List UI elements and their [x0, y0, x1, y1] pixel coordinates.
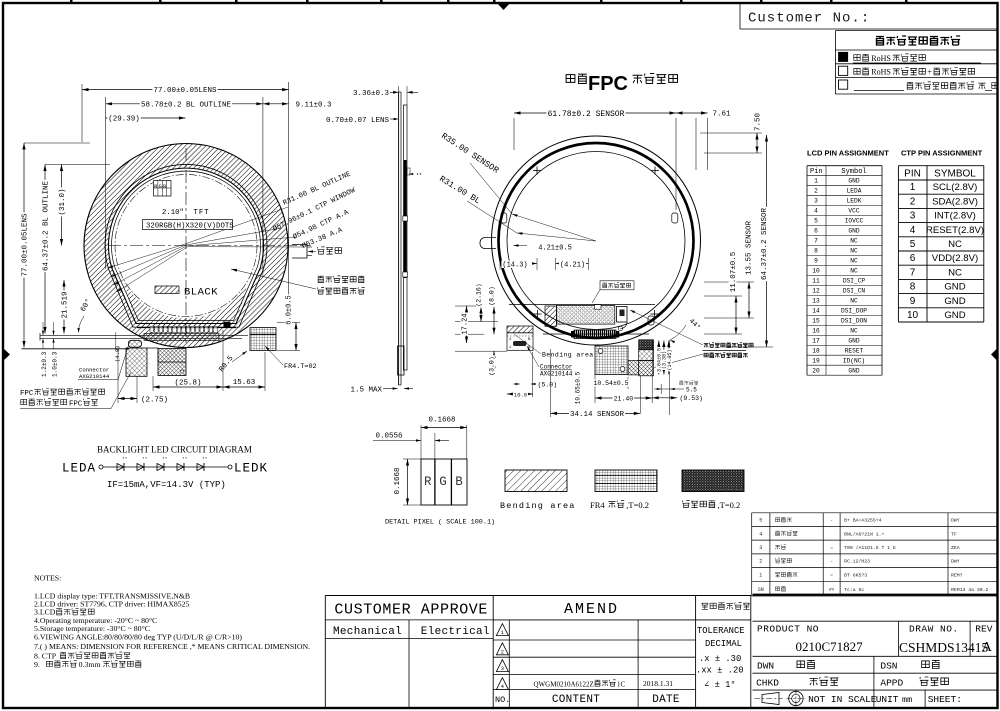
svg-text:2.LCD driver: ST7796, CTP driv: 2.LCD driver: ST7796, CTP driver: HIMAX8… [34, 600, 190, 609]
svg-text:0.1668: 0.1668 [394, 467, 402, 494]
svg-text:**: ** [122, 457, 128, 463]
svg-text:6: 6 [814, 228, 818, 235]
svg-text:A: A [982, 640, 993, 655]
svg-text:INT(2.8V): INT(2.8V) [934, 211, 976, 222]
svg-text:=: = [830, 546, 833, 551]
svg-text:3.36±0.3: 3.36±0.3 [353, 90, 390, 98]
svg-text:7.50: 7.50 [755, 113, 763, 132]
svg-text:Connector: Connector [540, 364, 573, 371]
svg-text:8: 8 [814, 248, 818, 255]
svg-text:#Y: #Y [829, 587, 835, 593]
svg-text:R: R [424, 475, 432, 489]
svg-text:0210C71827: 0210C71827 [796, 639, 864, 654]
svg-text:(14.3): (14.3) [502, 262, 527, 270]
svg-text:4: 4 [910, 225, 916, 236]
svg-text:3: 3 [759, 545, 762, 551]
svg-text:10.0: 10.0 [514, 392, 527, 399]
svg-text:**: ** [162, 457, 168, 463]
svg-text:(25.8): (25.8) [174, 380, 201, 388]
svg-text:=: = [830, 574, 833, 579]
svg-text:5: 5 [759, 518, 762, 524]
svg-text:BT 6K5?3: BT 6K5?3 [844, 573, 867, 579]
svg-text:UNIT: UNIT [876, 694, 899, 705]
svg-text:9.11±0.3: 9.11±0.3 [296, 101, 333, 109]
svg-text:4.21±0.5: 4.21±0.5 [538, 245, 572, 253]
svg-text:14: 14 [812, 308, 820, 315]
svg-text:10.54±0.5: 10.54±0.5 [593, 380, 628, 387]
svg-text:DWY: DWY [951, 559, 960, 565]
svg-text:∠ ± 1°: ∠ ± 1° [704, 680, 736, 690]
svg-text:GND: GND [944, 310, 965, 321]
svg-text:77.00±0.05LENS: 77.00±0.05LENS [153, 87, 217, 95]
svg-text:SCL(2.8V): SCL(2.8V) [933, 182, 978, 193]
svg-text:SN: SN [758, 587, 764, 593]
svg-text:2.10": 2.10" [162, 209, 184, 217]
svg-text:LCD PIN ASSIGNMENT: LCD PIN ASSIGNMENT [807, 149, 889, 158]
svg-text:BLACK: BLACK [184, 287, 218, 299]
svg-text:GND: GND [848, 228, 859, 235]
svg-text:(4.8): (4.8) [114, 345, 121, 362]
svg-text:Mechanical: Mechanical [333, 626, 402, 638]
svg-text:RESET: RESET [845, 348, 864, 355]
svg-text:(29.39): (29.39) [108, 116, 140, 124]
svg-text:6.VIEWING ANGLE:80/80/80/80 de: 6.VIEWING ANGLE:80/80/80/80 deg TYP (U/D… [34, 633, 242, 642]
svg-text:LEDK: LEDK [234, 462, 268, 476]
svg-text:NC: NC [850, 328, 858, 335]
svg-text:(14.05): (14.05) [667, 349, 673, 370]
svg-text:11: 11 [812, 278, 820, 285]
svg-text:34.14 SENSOR: 34.14 SENSOR [570, 411, 625, 419]
svg-text:Bending area: Bending area [500, 501, 576, 511]
svg-text:RC.12/H23: RC.12/H23 [844, 559, 870, 565]
svg-text:PRODUCT NO: PRODUCT NO [757, 624, 819, 635]
svg-text:NC: NC [850, 238, 858, 245]
svg-text:10: 10 [907, 310, 919, 321]
svg-text:NC: NC [850, 258, 858, 265]
svg-text:2: 2 [910, 196, 916, 207]
svg-text:(2.75): (2.75) [141, 397, 168, 405]
svg-text:RoHS: RoHS [871, 68, 891, 77]
svg-text:CSHMDS13415: CSHMDS13415 [899, 640, 989, 655]
svg-text:64.37±0.2 SENSOR: 64.37±0.2 SENSOR [761, 207, 769, 280]
svg-text:20: 20 [812, 368, 820, 375]
svg-text:Pin: Pin [810, 168, 823, 176]
svg-text:CTP PIN ASSIGNMENT: CTP PIN ASSIGNMENT [901, 149, 983, 158]
svg-text:G: G [439, 475, 447, 489]
svg-text:15.63: 15.63 [233, 379, 256, 387]
svg-text:DWY: DWY [951, 518, 960, 524]
svg-text:**: ** [416, 173, 422, 179]
svg-text:DWN: DWN [757, 661, 774, 672]
svg-text:3: 3 [910, 211, 916, 222]
svg-text:VCC: VCC [848, 208, 859, 215]
svg-text:21.519: 21.519 [62, 291, 70, 318]
svg-text:DSI_CN: DSI_CN [843, 288, 866, 295]
svg-text:17.24: 17.24 [462, 313, 470, 334]
svg-text:BNL/A6?21N 1.+: BNL/A6?21N 1.+ [844, 531, 884, 537]
svg-text:REM?: REM? [951, 573, 963, 579]
svg-text:(3.0): (3.0) [489, 356, 496, 376]
svg-text:QWGM0210A6122Z: QWGM0210A6122Z [534, 680, 594, 688]
svg-text:3: 3 [814, 198, 818, 205]
svg-text:11.07±0.5: 11.07±0.5 [730, 251, 738, 292]
svg-text:0.3mm: 0.3mm [79, 660, 101, 669]
svg-text:DRAW NO.: DRAW NO. [909, 624, 959, 635]
svg-text:1.5 MAX: 1.5 MAX [350, 387, 382, 395]
svg-text:B: B [455, 475, 463, 489]
svg-text:SYMBOL: SYMBOL [934, 169, 976, 180]
svg-text:NOT IN SCALE: NOT IN SCALE [808, 694, 877, 705]
svg-text:DATE: DATE [652, 694, 680, 706]
svg-text:FPC: FPC [69, 400, 83, 408]
svg-text:5: 5 [814, 218, 818, 225]
svg-text:GND: GND [848, 178, 859, 185]
svg-text:G: G [159, 183, 162, 190]
svg-text:DSN: DSN [880, 661, 897, 672]
svg-text:10.65±0.5: 10.65±0.5 [575, 371, 582, 404]
svg-text:,T=0.2: ,T=0.2 [626, 500, 649, 510]
svg-text:NC: NC [850, 268, 858, 275]
svg-text:FPC: FPC [20, 390, 34, 398]
svg-text:NC: NC [850, 298, 858, 305]
svg-text:58.78±0.2 BL OUTLINE: 58.78±0.2 BL OUTLINE [141, 101, 232, 109]
svg-text:5: 5 [910, 239, 916, 250]
svg-text:SDA(2.8V): SDA(2.8V) [932, 196, 978, 207]
svg-text:Symbol: Symbol [841, 168, 866, 176]
svg-text:61.78±0.2 SENSOR: 61.78±0.2 SENSOR [548, 110, 625, 119]
svg-text:Bending area: Bending area [542, 352, 594, 359]
svg-text:AMEND: AMEND [564, 601, 619, 618]
svg-text:8: 8 [910, 282, 916, 293]
svg-text:4: 4 [814, 208, 818, 215]
svg-text:6: 6 [910, 253, 916, 264]
svg-text:.xx ± .20: .xx ± .20 [696, 666, 744, 676]
svg-text:16: 16 [812, 328, 820, 335]
svg-text:**: ** [202, 457, 208, 463]
svg-text:NO.: NO. [495, 695, 510, 705]
svg-text:7.61: 7.61 [713, 111, 732, 119]
svg-text:77.00±0.05LENS: 77.00±0.05LENS [22, 213, 30, 277]
svg-text:TFT: TFT [194, 209, 210, 217]
svg-text:T00 /A11D1.5 T 1 E: T00 /A11D1.5 T 1 E [844, 545, 896, 551]
svg-text:IOVCC: IOVCC [845, 218, 864, 225]
svg-text:1.2±0.3: 1.2±0.3 [41, 351, 48, 377]
svg-text:CUSTOMER APPROVE: CUSTOMER APPROVE [334, 602, 488, 619]
svg-text:1C: 1C [617, 680, 626, 688]
svg-text:18: 18 [812, 348, 820, 355]
svg-text:(5.0): (5.0) [538, 381, 558, 388]
svg-text:Customer No.:: Customer No.: [748, 11, 870, 27]
svg-text:9: 9 [814, 258, 818, 265]
svg-text:FR4.T=02: FR4.T=02 [284, 363, 317, 371]
svg-text:0.70±0.07 LENS: 0.70±0.07 LENS [326, 117, 390, 125]
svg-text:NC: NC [948, 239, 962, 250]
svg-text:DETAIL PIXEL ( SCALE 100.1): DETAIL PIXEL ( SCALE 100.1) [385, 519, 495, 527]
svg-text:7: 7 [910, 267, 916, 278]
svg-text:GND: GND [944, 282, 965, 293]
svg-text:320RGB(H)X320(V)DOTS: 320RGB(H)X320(V)DOTS [146, 222, 234, 230]
svg-text:64.37±0.2 BL OUTLINE: 64.37±0.2 BL OUTLINE [43, 180, 51, 271]
svg-text:RESET(2.8V): RESET(2.8V) [926, 225, 984, 236]
svg-text:,T=0.2: ,T=0.2 [718, 500, 741, 510]
svg-text:(2.16): (2.16) [476, 283, 483, 306]
svg-text:12: 12 [812, 288, 820, 295]
svg-text:(31.0): (31.0) [59, 188, 67, 215]
svg-text:B+ BA=A325S+4: B+ BA=A325S+4 [844, 518, 882, 524]
svg-text:Electrical: Electrical [421, 626, 490, 638]
svg-text:LEDA: LEDA [847, 188, 862, 195]
svg-text:(9.53): (9.53) [680, 395, 703, 402]
svg-text:APPD: APPD [880, 678, 903, 689]
svg-text:(4.21): (4.21) [560, 262, 585, 270]
svg-text:4: 4 [501, 684, 504, 690]
svg-text:CHKD: CHKD [756, 678, 779, 689]
svg-text:NC: NC [850, 248, 858, 255]
svg-text:GND: GND [944, 296, 965, 307]
svg-text:SHEET:: SHEET: [928, 694, 962, 705]
svg-text:17: 17 [812, 338, 820, 345]
svg-text:9: 9 [910, 296, 916, 307]
svg-text:15: 15 [812, 318, 820, 325]
svg-text:0.0556: 0.0556 [375, 433, 403, 441]
svg-text:-: - [830, 560, 833, 565]
svg-text:LEDA: LEDA [62, 462, 96, 476]
svg-text:DSI_CP: DSI_CP [843, 278, 866, 285]
svg-text:LEDK: LEDK [847, 198, 862, 205]
svg-text:**: ** [142, 457, 148, 463]
svg-text:FPC: FPC [588, 73, 628, 95]
svg-text:1: 1 [501, 630, 504, 636]
svg-text:5.Storage temperature: -30°C ~: 5.Storage temperature: -30°C ~ 80°C [34, 624, 150, 633]
svg-text:DSI_DOP: DSI_DOP [841, 308, 867, 315]
svg-text:PIN: PIN [904, 169, 921, 180]
svg-text:7.( ) MEANS: DIMENSION FOR REF: 7.( ) MEANS: DIMENSION FOR REFERENCE ,* … [34, 642, 310, 651]
svg-text:(8.0): (8.0) [489, 286, 496, 306]
svg-text:RoHS: RoHS [871, 54, 891, 63]
svg-text:mm: mm [902, 695, 912, 705]
svg-text:2: 2 [814, 188, 818, 195]
svg-text:1.0±0.3: 1.0±0.3 [51, 351, 58, 377]
svg-text:BACKLIGHT LED CIRCUIT DIAGRAM: BACKLIGHT LED CIRCUIT DIAGRAM [97, 445, 252, 455]
svg-text:REV: REV [975, 624, 992, 635]
svg-text:2018.1.31: 2018.1.31 [643, 679, 673, 688]
svg-text:IF=15mA,VF=14.3V (TYP): IF=15mA,VF=14.3V (TYP) [107, 480, 226, 490]
svg-text:FR4: FR4 [590, 500, 607, 510]
svg-text:VDD(2.8V): VDD(2.8V) [932, 253, 978, 264]
svg-text:9.: 9. [34, 660, 42, 669]
svg-text:**: ** [182, 457, 188, 463]
svg-text:3: 3 [501, 666, 504, 672]
svg-text:1: 1 [910, 182, 916, 193]
svg-text:5.5: 5.5 [686, 386, 697, 393]
svg-text:Tc:a 5c: Tc:a 5c [844, 587, 864, 593]
svg-text:21.40: 21.40 [614, 395, 634, 402]
svg-text:AXG210144: AXG210144 [540, 371, 573, 378]
svg-text:-: - [830, 519, 833, 524]
svg-text:1: 1 [759, 573, 762, 579]
svg-text:NC: NC [948, 267, 962, 278]
svg-text:ZEA: ZEA [951, 545, 960, 551]
svg-text:4: 4 [759, 531, 762, 537]
svg-text:TOLERANCE: TOLERANCE [697, 626, 745, 636]
svg-text:10: 10 [812, 268, 820, 275]
svg-text:DSI_DON: DSI_DON [841, 318, 867, 325]
svg-text:NOTES:: NOTES: [34, 574, 61, 583]
svg-text:CONTENT: CONTENT [552, 694, 600, 706]
svg-text:6.0±0.5: 6.0±0.5 [286, 295, 294, 324]
svg-text:7: 7 [814, 238, 818, 245]
svg-text:REM13 4a 30.2: REM13 4a 30.2 [951, 587, 989, 593]
svg-text:2: 2 [501, 649, 504, 655]
svg-text:13.55 SENSOR: 13.55 SENSOR [746, 220, 754, 275]
svg-text:GND: GND [848, 368, 859, 375]
svg-text:+: + [927, 68, 932, 77]
svg-text:AXG210144: AXG210144 [79, 373, 110, 380]
svg-text:2: 2 [759, 559, 762, 565]
svg-text:1: 1 [814, 178, 818, 185]
svg-text:DECIMAL: DECIMAL [705, 639, 742, 649]
svg-text:TF: TF [951, 531, 957, 537]
svg-text:GND: GND [848, 338, 859, 345]
svg-text:ID(NC): ID(NC) [843, 358, 865, 365]
svg-text:13: 13 [812, 298, 820, 305]
svg-text:19: 19 [812, 358, 820, 365]
svg-text:.x ± .30: .x ± .30 [699, 654, 741, 664]
svg-text:0.1668: 0.1668 [428, 417, 455, 425]
